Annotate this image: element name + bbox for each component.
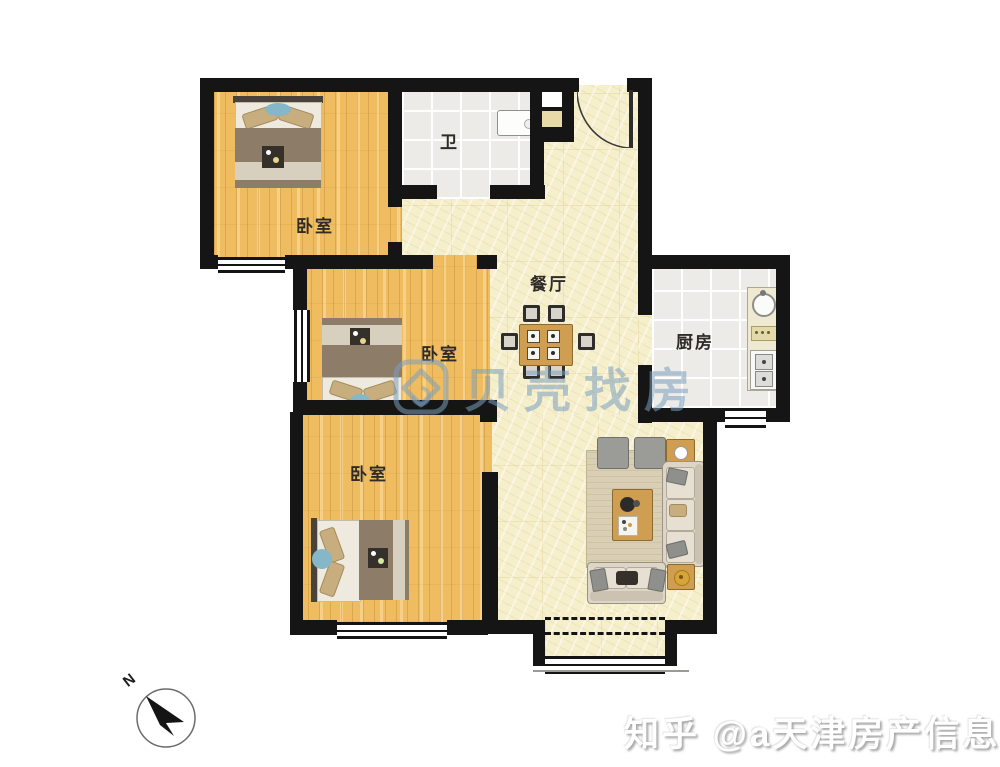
bed-icon <box>322 318 402 413</box>
wall <box>486 620 545 634</box>
wall <box>703 422 717 634</box>
zhihu-watermark: 知乎 @a天津房产信息佳 <box>624 706 1000 757</box>
beike-watermark: 贝壳找房 <box>392 352 704 421</box>
window <box>725 408 766 428</box>
wall <box>638 78 652 315</box>
window <box>218 257 285 273</box>
ottoman-icon <box>634 437 666 469</box>
room-label-bedroom-bottom: 卧室 <box>350 460 388 485</box>
wall <box>447 620 488 635</box>
coffee-table-icon <box>612 489 653 541</box>
ottoman-icon <box>597 437 629 469</box>
window <box>294 310 310 382</box>
wall <box>293 262 307 310</box>
balcony-boundary-dashed <box>545 617 665 635</box>
living-room-set <box>585 436 705 606</box>
wall <box>285 255 433 269</box>
stove-icon <box>750 350 778 390</box>
sink-icon <box>752 293 776 317</box>
floor-plan-image: 卧室 卫 餐厅 厨房 卧室 卧室 贝壳找房 知乎 @a天津房产信息佳 N <box>0 0 1000 767</box>
wall <box>290 412 303 635</box>
wall <box>764 408 790 422</box>
room-label-kitchen: 厨房 <box>676 328 714 353</box>
bathroom-floor <box>402 90 530 199</box>
compass: N <box>112 668 202 763</box>
sofa-icon <box>662 461 706 567</box>
beike-watermark-text: 贝壳找房 <box>464 352 704 421</box>
wall <box>388 185 437 199</box>
entry-door-arc-icon <box>577 90 632 148</box>
wall <box>482 472 498 622</box>
small-appliance-icon <box>751 326 777 341</box>
window-sill-line <box>533 670 689 672</box>
wall <box>533 634 545 666</box>
wall <box>200 78 214 269</box>
bed-icon <box>311 518 409 602</box>
duct-niche <box>534 78 574 142</box>
room-label-bathroom: 卫 <box>440 128 459 153</box>
side-table-icon <box>667 564 695 590</box>
armchair-icon <box>587 562 666 604</box>
compass-icon <box>126 676 202 756</box>
room-label-bedroom-top: 卧室 <box>296 212 334 237</box>
wall <box>665 634 677 666</box>
beike-logo-icon <box>392 358 450 416</box>
window <box>337 622 447 639</box>
wall <box>388 242 402 255</box>
wall <box>645 255 790 269</box>
wall <box>200 255 218 269</box>
room-label-dining: 餐厅 <box>530 270 568 295</box>
bed-icon <box>233 96 323 188</box>
wall <box>665 620 717 634</box>
wall <box>477 255 497 269</box>
wall <box>776 262 790 422</box>
